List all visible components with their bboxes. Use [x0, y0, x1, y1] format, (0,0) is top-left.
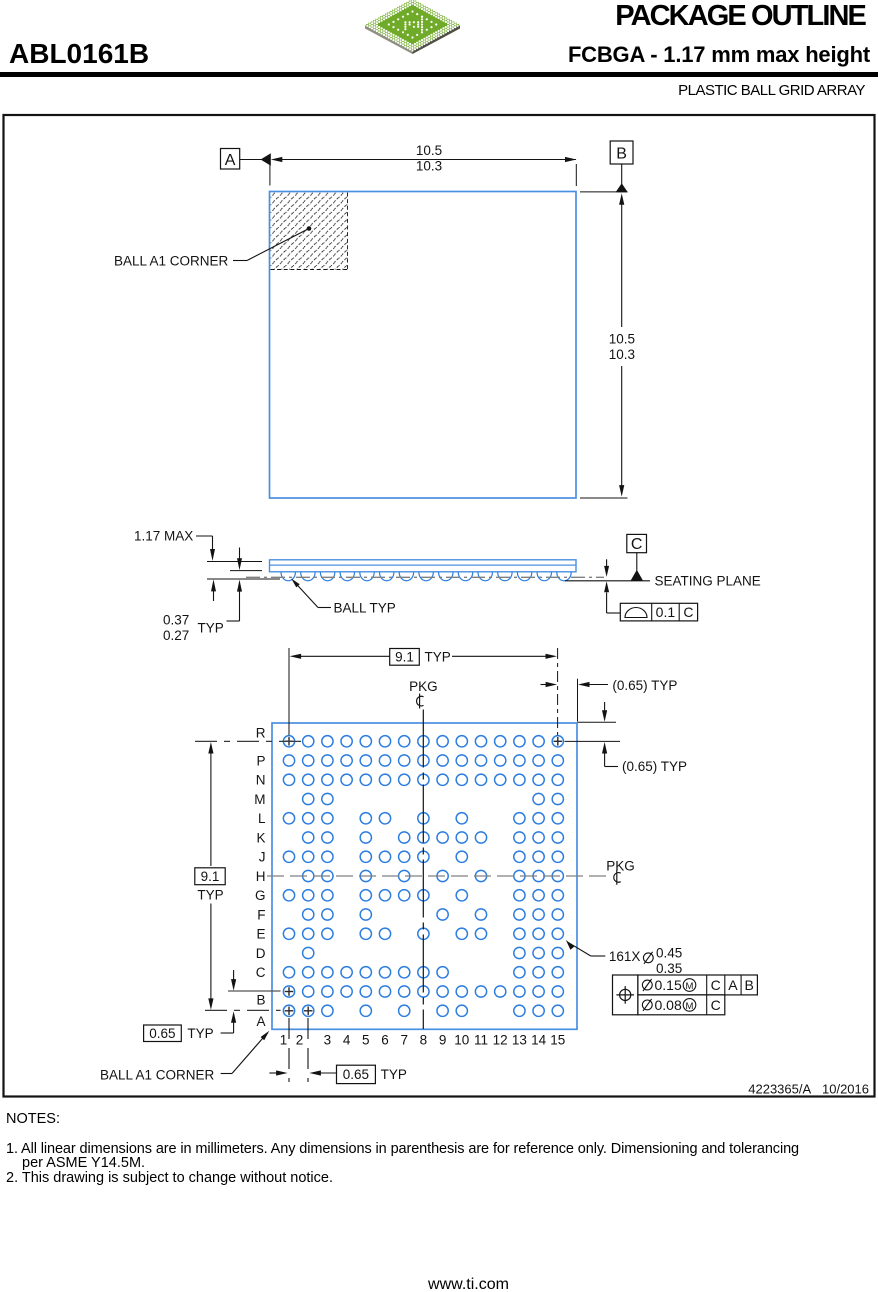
svg-text:15: 15 — [550, 1033, 565, 1048]
svg-text:0.27: 0.27 — [163, 628, 189, 643]
svg-text:K: K — [256, 830, 265, 845]
svg-text:P: P — [256, 753, 265, 768]
svg-text:R: R — [256, 726, 266, 741]
svg-text:PKG: PKG — [606, 859, 635, 874]
svg-text:0.37: 0.37 — [163, 613, 189, 628]
svg-text:0.35: 0.35 — [656, 961, 682, 976]
svg-text:(0.65) TYP: (0.65) TYP — [622, 759, 687, 774]
svg-text:L: L — [258, 811, 266, 826]
svg-text:0.08: 0.08 — [655, 997, 682, 1013]
svg-text:11: 11 — [474, 1033, 488, 1048]
svg-text:0.15: 0.15 — [655, 977, 682, 993]
svg-text:6: 6 — [381, 1033, 389, 1048]
svg-text:BALL TYP: BALL TYP — [334, 601, 396, 616]
svg-text:10.3: 10.3 — [609, 347, 635, 362]
svg-text:0.65: 0.65 — [149, 1026, 175, 1041]
svg-text:10.5: 10.5 — [609, 332, 635, 347]
svg-text:M: M — [254, 792, 265, 807]
svg-text:1.17 MAX: 1.17 MAX — [134, 529, 193, 544]
svg-text:161X: 161X — [609, 949, 641, 964]
svg-text:3: 3 — [324, 1033, 332, 1048]
svg-text:B: B — [256, 993, 265, 1008]
svg-text:BALL A1 CORNER: BALL A1 CORNER — [100, 1068, 215, 1083]
svg-text:M: M — [686, 981, 694, 992]
svg-text:C: C — [683, 604, 693, 620]
svg-text:A: A — [256, 1014, 265, 1029]
svg-text:TYP: TYP — [198, 621, 224, 636]
svg-text:C: C — [256, 965, 266, 980]
svg-text:J: J — [259, 850, 266, 865]
svg-text:E: E — [256, 927, 265, 942]
svg-text:9.1: 9.1 — [201, 869, 220, 884]
svg-text:TYP: TYP — [425, 650, 451, 665]
svg-text:1: 1 — [280, 1033, 288, 1048]
svg-text:0.1: 0.1 — [656, 604, 676, 620]
svg-text:N: N — [256, 773, 266, 788]
svg-text:H: H — [256, 869, 266, 884]
svg-text:14: 14 — [531, 1033, 547, 1048]
svg-text:A: A — [728, 977, 738, 993]
svg-text:5: 5 — [362, 1033, 370, 1048]
svg-text:F: F — [257, 907, 265, 922]
svg-text:0.45: 0.45 — [656, 946, 682, 961]
svg-text:B: B — [745, 977, 754, 993]
svg-text:C: C — [711, 977, 721, 993]
svg-text:G: G — [255, 888, 266, 903]
svg-text:4223365/A 10/2016: 4223365/A 10/2016 — [748, 1082, 869, 1097]
svg-text:13: 13 — [512, 1033, 527, 1048]
svg-text:(0.65) TYP: (0.65) TYP — [612, 678, 677, 693]
svg-text:10.3: 10.3 — [416, 159, 442, 174]
svg-text:B: B — [616, 146, 627, 163]
svg-text:D: D — [256, 946, 266, 961]
svg-text:0.65: 0.65 — [343, 1067, 369, 1082]
svg-text:C: C — [631, 536, 643, 553]
svg-text:10: 10 — [454, 1033, 469, 1048]
svg-text:PKG: PKG — [409, 679, 438, 694]
svg-text:2: 2 — [296, 1033, 304, 1048]
svg-text:TYP: TYP — [197, 888, 223, 903]
svg-text:9: 9 — [439, 1033, 447, 1048]
svg-text:9.1: 9.1 — [395, 650, 414, 665]
svg-text:A: A — [225, 152, 236, 169]
svg-text:C: C — [711, 997, 721, 1013]
svg-text:SEATING PLANE: SEATING PLANE — [655, 574, 761, 589]
svg-text:10.5: 10.5 — [416, 143, 442, 158]
svg-text:M: M — [686, 1001, 694, 1012]
svg-text:8: 8 — [420, 1033, 428, 1048]
svg-text:BALL A1 CORNER: BALL A1 CORNER — [114, 254, 229, 269]
svg-text:TYP: TYP — [381, 1067, 407, 1082]
svg-text:4: 4 — [343, 1033, 351, 1048]
svg-text:12: 12 — [493, 1033, 508, 1048]
svg-text:TYP: TYP — [187, 1026, 213, 1041]
svg-text:7: 7 — [400, 1033, 408, 1048]
